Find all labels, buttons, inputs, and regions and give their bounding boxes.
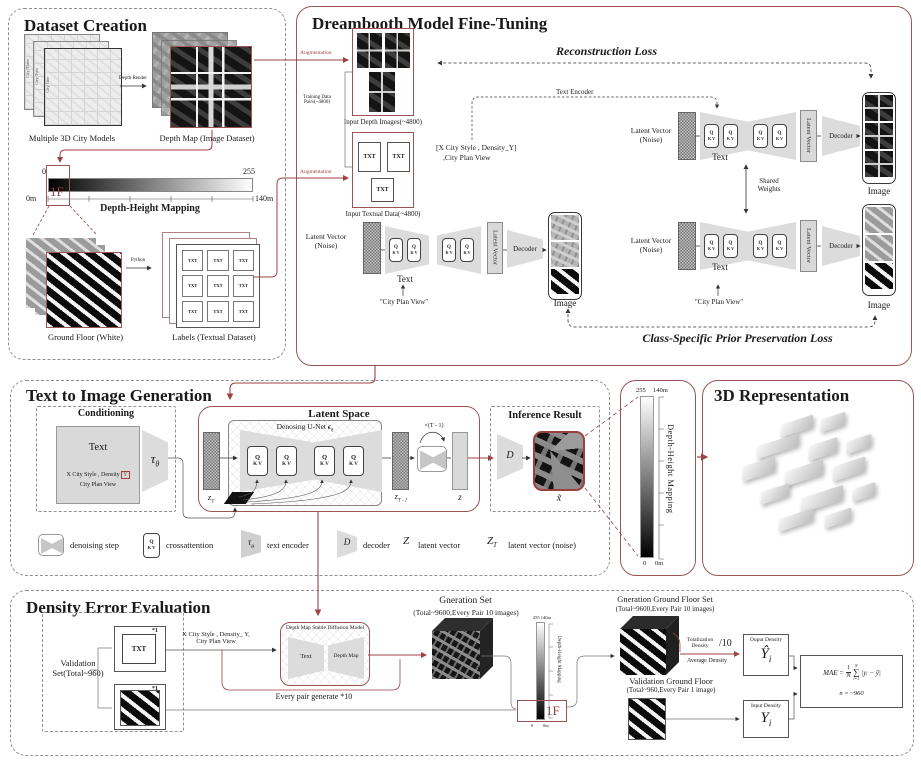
mae-box [800, 655, 903, 708]
latent-vector-box: Latent Vector [800, 220, 817, 272]
density-prompt-line2: City Plan View [182, 638, 250, 645]
kv-label: K V [776, 137, 783, 141]
rep3d-title: 3D Representation [714, 386, 849, 406]
dreambooth-title: Dreambooth Model Fine-Tuning [312, 14, 547, 34]
t-subscript: T [211, 499, 214, 505]
sd-text-label: Text [288, 653, 324, 660]
totalization-line2: Density [682, 643, 718, 649]
latent-vector-vtext: Latent Vector [805, 118, 812, 153]
denoise-right-wing [52, 537, 63, 555]
validation-depth-image [120, 690, 160, 726]
output-image [551, 242, 579, 267]
depth-map-caption: Depth Map (Image Dataset) [144, 133, 270, 143]
image-label: Image [546, 298, 584, 308]
small-bar-caption: Depth-Height Mapping [556, 636, 561, 696]
crossattention-block: QK V [772, 234, 787, 258]
kv-label: K V [727, 247, 734, 251]
density-prompt-line1: X City Style , Density_ Y, [182, 631, 250, 638]
txt-box: TXT [358, 142, 381, 172]
kv-label: K V [727, 137, 734, 141]
kv-label: K V [708, 137, 715, 141]
ggf-set-label: Gneration Ground Floor Set [585, 594, 745, 604]
bar-0m-label: 0m [26, 194, 36, 203]
div10-label: /10 [719, 638, 732, 649]
lv-line2: (Noise) [626, 245, 676, 254]
small-bar-top-label: 255 140m [524, 615, 560, 620]
generation-set-sub: (Total~9600,Every Pair 10 images) [392, 608, 540, 617]
city-plan-view-label: "City Plan View" [373, 298, 435, 306]
input-depth-image [385, 33, 410, 68]
depth-height-mapping-caption: Depth-Height Mapping [70, 203, 230, 214]
text-label: Text [698, 152, 742, 162]
zt-label: zT [198, 492, 224, 505]
kv-label: K V [776, 247, 783, 251]
txt-cell: TXT [182, 250, 203, 271]
kv-label: K V [757, 137, 764, 141]
mae-note: n = ~960 [800, 690, 903, 697]
crossattention-block: QK V [772, 124, 787, 148]
output-image [865, 151, 893, 177]
txt-cell: TXT [233, 275, 254, 296]
image-output-stack [548, 212, 582, 300]
image-output-stack [862, 92, 896, 184]
loop-count-label: ×(T - 1) [418, 423, 450, 429]
image-output-stack [862, 204, 896, 296]
z-latent-box [452, 432, 468, 490]
z-label: z [452, 492, 468, 502]
i-subscript: i [769, 655, 772, 665]
y: Y [761, 710, 769, 726]
y-hat-label: Ŷi [743, 646, 789, 665]
colorbar-0m: 0m [655, 560, 663, 567]
txt-cell: TXT [233, 250, 254, 271]
prompt-line2: City Plan View [58, 482, 138, 488]
class-loss-label: Class-Specific Prior Preservation Loss [615, 331, 860, 346]
depth-render-label: Depth Render [112, 76, 154, 81]
python-label: Python [120, 258, 156, 263]
city-layer-label: City Three [25, 36, 30, 78]
zt1-noise-image [392, 432, 409, 490]
mae-formula: MAE = 1N N∑i=1 |yᵢ − ŷ| [804, 664, 900, 681]
city-models-caption: Multiple 3D City Models [12, 133, 132, 143]
shared-weights-label: Shared Weights [748, 177, 790, 193]
validation-line2: Set(Total~960) [46, 668, 110, 678]
output-image [865, 207, 893, 233]
ground-floor-front [46, 252, 122, 328]
legend-crossattention-label: crossattention [166, 540, 213, 550]
crossattention-block: QK V [314, 446, 335, 476]
denoise-left-wing [41, 537, 52, 555]
labels-caption: Labels (Textual Dataset) [158, 332, 270, 342]
d-label: D [497, 450, 523, 461]
validation-set-label: Validation Set(Total~960) [46, 658, 110, 678]
crossattention-block: QK V [723, 124, 738, 148]
legend-latent-vector-label: latent vector [418, 540, 460, 550]
theta-subscript: θ [251, 544, 254, 550]
legend-text-encoder-label: text encoder [267, 540, 309, 550]
latent-space-label: Latent Space [198, 408, 480, 420]
image-label: Image [860, 186, 898, 196]
txt-box: TXT [371, 178, 394, 202]
vgf-sub: (Total~960,Every Pair 1 image) [592, 686, 750, 694]
noise-latent-image [678, 112, 696, 160]
depth-height-colorbar-panel [620, 380, 696, 576]
reconstruction-loss-label: Reconstruction Loss [556, 44, 676, 59]
txt-cell: TXT [182, 301, 203, 322]
kv-label: K V [708, 247, 715, 251]
first-floor-label: 1F [50, 184, 64, 200]
city-model-front [44, 48, 122, 126]
small-bar-0m: 0m [543, 723, 549, 728]
kv-label: K V [446, 251, 453, 255]
input-depth-image [369, 72, 395, 112]
crossattention-block: QK V [460, 238, 474, 262]
prompt-text: X City Style , Density [66, 472, 119, 478]
depth-map-grid [171, 47, 251, 127]
lv-line1: Latent Vector [300, 232, 352, 241]
crossattention-block: QK V [723, 234, 738, 258]
text-label: Text [56, 442, 140, 453]
sd-model-label: Depth Map Stable Diffusion Model [282, 625, 368, 631]
denoise-left-wing [420, 449, 433, 471]
denoising-step-icon [417, 446, 447, 472]
input-textual-caption: Input Textual Data(~4800) [340, 210, 426, 218]
shared-line2: Weights [748, 185, 790, 193]
colorbar-255: 255 [636, 387, 646, 394]
latent-vector-noise-label: Latent Vector (Noise) [626, 236, 676, 254]
output-image [865, 235, 893, 261]
ground-floor-caption: Ground Floor (White) [38, 332, 133, 342]
legend-latent-vector-noise-label: latent vector (noise) [508, 540, 576, 550]
lv-line1: Latent Vector [626, 126, 676, 135]
every-pair-label: Every pair generate *10 [258, 692, 370, 701]
bar-255-label: 255 [243, 167, 255, 176]
inference-result-label: Inference Result [494, 410, 596, 421]
ggf-cube-front [620, 629, 666, 675]
validation-txt: TXT [122, 634, 156, 664]
latent-vector-box: Latent Vector [800, 110, 817, 162]
text-encoder-label: Text Encoder [556, 88, 593, 96]
city-layer-label: City One [45, 51, 50, 93]
y-i-label: Yi [743, 710, 789, 729]
dataset-title: Dataset Creation [24, 16, 147, 36]
input-depth-caption: Input Depth Images(~4800) [340, 118, 426, 126]
crossattention-legend-icon: QK V [143, 533, 160, 558]
i-subscript: i [769, 719, 772, 729]
totalization-label: Totalization Density [682, 637, 718, 649]
theta-subscript: θ [155, 460, 159, 469]
small-bar-0: 0 [531, 723, 533, 728]
shared-line1: Shared [748, 177, 790, 185]
mae-lhs: MAE = [823, 669, 844, 677]
zt-legend: ZT [487, 535, 497, 549]
vertical-gradient-bar [640, 396, 654, 558]
output-image [551, 215, 579, 240]
kv-label: K V [320, 462, 329, 467]
crossattention-block: QK V [407, 238, 421, 262]
input-depth-image [357, 33, 382, 68]
crossattention-block: QK V [704, 124, 719, 148]
zt-noise-image [203, 432, 220, 490]
vgf-image [628, 698, 666, 740]
unet-title: Denosing U-Net ϵθ [238, 422, 372, 434]
z-legend: Z [403, 535, 409, 547]
q-label: Q [351, 455, 356, 462]
colorbar-caption: Depth-Height Mapping [666, 424, 676, 542]
t1-subscript: T - 1 [398, 499, 407, 504]
prompt-line1: X City Style , Density Y [58, 472, 138, 478]
lv-line1: Latent Vector [626, 236, 676, 245]
input-density-label: Input Density [744, 703, 788, 709]
mae-sigma: N∑i=1 [853, 664, 859, 681]
zt1-label: zT - 1 [382, 492, 420, 504]
kv-label: K V [349, 462, 358, 467]
colorbar-0: 0 [643, 560, 646, 567]
d-legend: D [337, 537, 357, 547]
density-prompt-label: X City Style , Density_ Y, City Plan Vie… [182, 631, 250, 645]
prompt-y-box: Y [121, 471, 129, 479]
figure-canvas: Dataset Creation City Three City Two Cit… [0, 0, 921, 764]
latent-vector-box: Latent Vector [487, 222, 503, 274]
noise-latent-image [363, 222, 381, 274]
conditioning-label: Conditioning [66, 408, 146, 419]
t-subscript: T [493, 542, 497, 549]
kv-label: K V [757, 247, 764, 251]
noise-latent-image [678, 222, 696, 270]
training-pairs-line2: Pairs(~4800) [292, 100, 342, 105]
txt-cell: TXT [207, 301, 228, 322]
image-label: Image [860, 300, 898, 310]
training-pairs-label: Training Data Pairs(~4800) [292, 95, 342, 105]
output-image [865, 263, 893, 289]
denoising-step-legend-icon [38, 534, 64, 556]
latent-vector-vtext: Latent Vector [805, 228, 812, 263]
depth-map-front [170, 46, 252, 128]
mae-term: |yᵢ − ŷ| [861, 669, 880, 677]
crossattention-block: QK V [247, 446, 268, 476]
sigma-lower: i=1 [853, 677, 859, 681]
output-density-label: Ouput Density [744, 637, 788, 643]
q-label: Q [255, 455, 260, 462]
txt-cell: TXT [207, 275, 228, 296]
text-conditioning-block [56, 426, 140, 504]
vgf-label: Validation Ground Floor [592, 676, 750, 686]
legend-decoder-label: decoder [363, 540, 390, 550]
crossattention-block: QK V [276, 446, 297, 476]
augmentation-label-2: Augmentation [300, 169, 331, 175]
denoise-right-wing [433, 449, 446, 471]
bar-140m-label: 140m [255, 194, 273, 203]
tau-theta-label: τθ [142, 451, 168, 469]
text-label: Text [698, 262, 742, 272]
prompt-line1: [X City Style , Density_Y] [436, 143, 517, 152]
kv-label: K V [148, 546, 156, 551]
output-image [865, 123, 893, 149]
kv-label: K V [464, 251, 471, 255]
crossattention-block: QK V [753, 234, 768, 258]
x-tilde-label: x̃ [533, 493, 585, 504]
txt-cell: TXT [207, 250, 228, 271]
latent-vector-noise-label: Latent Vector (Noise) [626, 126, 676, 144]
crossattention-block: QK V [442, 238, 456, 262]
kv-label: K V [282, 462, 291, 467]
city-plan-view-label: "City Plan View" [688, 298, 750, 306]
latent-vector-noise-label: Latent Vector (Noise) [300, 232, 352, 250]
gen-cube-front [432, 631, 480, 679]
inference-image [533, 431, 585, 491]
lv-line2: (Noise) [300, 241, 352, 250]
q-label: Q [284, 455, 289, 462]
crossattention-block: QK V [753, 124, 768, 148]
kv-label: K V [253, 462, 262, 467]
denominator: N [847, 673, 851, 680]
txt-cell: TXT [182, 275, 203, 296]
lv-line2: (Noise) [626, 135, 676, 144]
numerator: 1 [846, 665, 851, 673]
crossattention-block: QK V [389, 238, 403, 262]
city-layer-label: City Two [34, 43, 39, 85]
labels-grid: TXT TXT TXT TXT TXT TXT TXT TXT TXT [176, 244, 260, 328]
prompt-line2: ,City Plan View [443, 153, 491, 162]
txt-cell: TXT [233, 301, 254, 322]
output-image [865, 95, 893, 121]
kv-label: K V [393, 251, 400, 255]
average-density-label: Average Density [678, 658, 736, 664]
output-image [551, 269, 579, 294]
crossattention-block: QK V [343, 446, 364, 476]
mae-fraction: 1N [846, 665, 851, 679]
t2i-title: Text to Image Generation [26, 386, 212, 406]
colorbar-140m: 140m [653, 387, 668, 394]
unet-title-text: Denosing U-Net [277, 422, 328, 431]
generation-set-label: Gneration Set [398, 596, 533, 606]
validation-line1: Validation [46, 658, 110, 668]
augmentation-label-1: Augmentation [300, 50, 331, 56]
kv-label: K V [411, 251, 418, 255]
sd-depth-label: Depth Map [328, 653, 364, 659]
depth-height-gradient-bar [48, 178, 253, 192]
ggf-set-sub: (Total~9600,Every Pair 10 images) [585, 605, 745, 613]
q-label: Q [322, 455, 327, 462]
theta-subscript: θ [331, 429, 333, 434]
small-first-floor-label: 1F [546, 703, 560, 719]
tau-theta-legend: τθ [241, 537, 261, 550]
y-hat: Ŷ [761, 646, 769, 662]
latent-vector-vtext: Latent Vector [492, 230, 499, 265]
text-label: Text [383, 274, 427, 284]
crossattention-block: QK V [704, 234, 719, 258]
txt-box: TXT [387, 142, 410, 172]
legend-denoising-label: denoising step [70, 540, 119, 550]
